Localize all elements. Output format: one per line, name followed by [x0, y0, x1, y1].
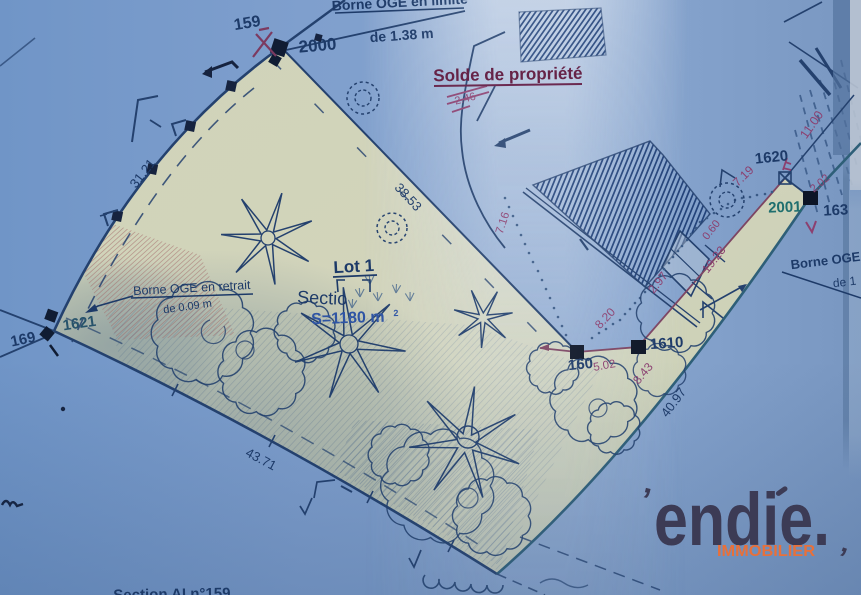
svg-text:Solde de propriété: Solde de propriété	[433, 64, 583, 86]
svg-text:1620: 1620	[754, 147, 789, 167]
svg-text:Sectio: Sectio	[297, 287, 348, 309]
svg-text:IMMOBILIER: IMMOBILIER	[717, 543, 815, 560]
svg-text:2001: 2001	[768, 198, 802, 216]
svg-text:de 1: de 1	[832, 274, 857, 291]
svg-text:163: 163	[823, 201, 849, 219]
